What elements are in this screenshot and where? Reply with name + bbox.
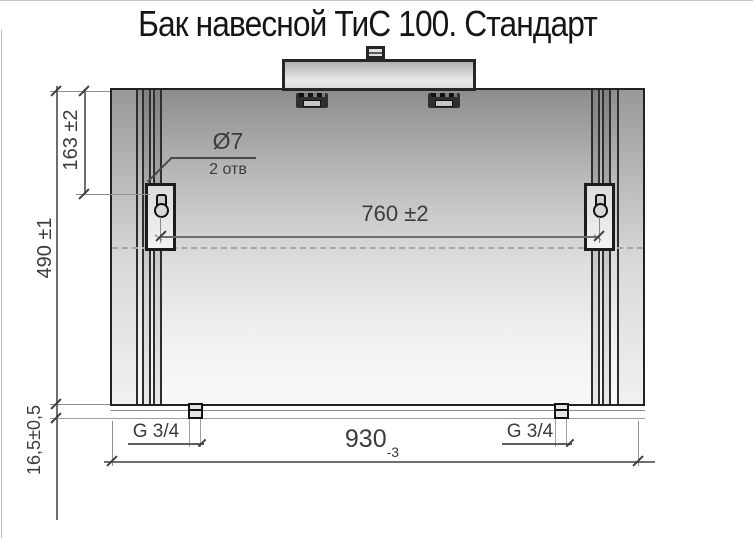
page-edge-line-top <box>0 0 753 1</box>
level-dash-line <box>112 247 643 249</box>
drawing-canvas: Бак навесной ТиС 100. Стандарт Ø7 2 отв <box>0 0 753 538</box>
mounting-rail-bar <box>282 59 476 91</box>
drawing-title: Бак навесной ТиС 100. Стандарт <box>106 3 630 45</box>
fitting-left-underline <box>128 443 204 445</box>
rail-foot-right <box>428 93 460 108</box>
page-edge-line-left <box>1 30 2 538</box>
rail-foot-window <box>303 100 321 107</box>
keyhole-hole <box>154 203 169 218</box>
dim-930-text: 930-3 <box>312 425 432 456</box>
rail-foot-window <box>435 100 453 107</box>
mounting-rail-knob <box>366 46 385 59</box>
dim-760-line <box>161 236 599 238</box>
extension-line-hole-level <box>76 194 150 195</box>
fitting-band <box>556 409 567 411</box>
dim-490-text: 490 ±1 <box>33 198 57 298</box>
dim-16-5-text: 16,5±0,5 <box>22 385 46 495</box>
fitting-left <box>188 403 203 419</box>
keyhole-bracket-right <box>584 183 615 251</box>
hole-diameter-label: Ø7 <box>198 128 258 155</box>
dim-930-line <box>104 461 655 463</box>
dim-930-value: 930 <box>345 425 387 453</box>
knob-line <box>369 52 382 54</box>
leader-tick <box>566 439 574 447</box>
fitting-right-label: G 3/4 <box>500 421 560 443</box>
rail-foot-nubs <box>431 93 457 97</box>
fitting-band <box>190 409 201 411</box>
dim-760-text: 760 ±2 <box>330 201 460 227</box>
dim-490-line <box>56 86 58 520</box>
callout-underline <box>170 157 256 159</box>
keyhole-hole <box>593 203 608 218</box>
rail-foot-left <box>296 93 328 108</box>
dim-930-tolerance: -3 <box>387 444 399 460</box>
rail-foot-nubs <box>299 93 325 97</box>
fitting-right <box>554 403 569 419</box>
fitting-left-label: G 3/4 <box>126 421 186 443</box>
fitting-right-underline <box>502 443 572 445</box>
extension-line-bottom <box>50 404 110 405</box>
dim-163-text: 163 ±2 <box>59 90 83 190</box>
dim-163-line <box>84 89 86 194</box>
hole-count-label: 2 отв <box>198 161 258 179</box>
